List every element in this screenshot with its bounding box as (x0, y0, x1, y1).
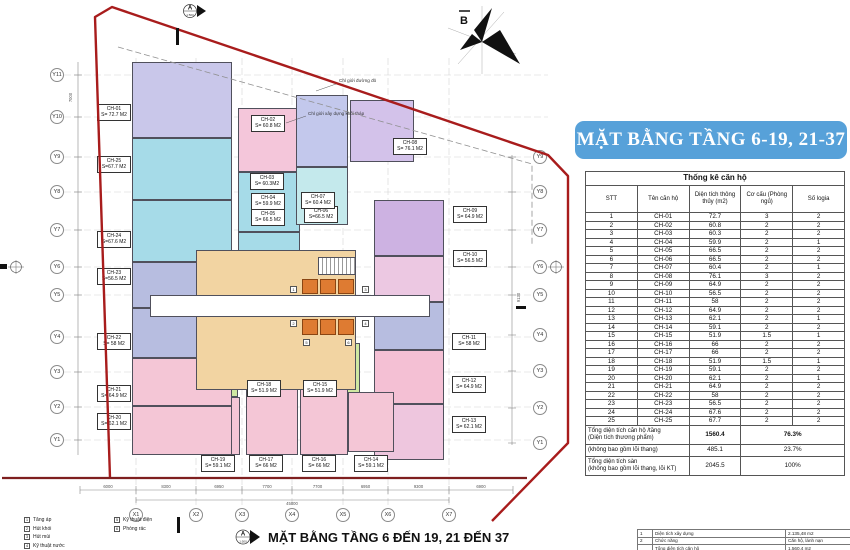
stats-cell: CH-11 (637, 298, 689, 307)
info-cell: Căn hộ, lánh nạn (786, 537, 850, 545)
grid-axis-x7: X7 (442, 508, 456, 522)
stats-cell: 1 (793, 374, 845, 383)
stats-cell: 2 (741, 383, 793, 392)
stats-cell: 2 (741, 221, 793, 230)
stats-cell: CH-18 (637, 357, 689, 366)
grid-axis-y6-left: Y6 (50, 260, 64, 274)
legend-number: 4 (24, 543, 30, 549)
stats-cell: 2 (741, 315, 793, 324)
stats-row: 24CH-2467.622 (586, 408, 845, 417)
stats-cell: 2 (793, 272, 845, 281)
apartment-block-ch-09 (374, 200, 444, 256)
apartment-block-ch-01 (132, 62, 232, 138)
stats-cell: 2 (741, 306, 793, 315)
stats-cell: 60.8 (689, 221, 741, 230)
stats-cell: 6 (586, 255, 638, 264)
stats-cell: 19 (586, 366, 638, 375)
stats-column-header: Diện tích thông thủy (m2) (689, 186, 741, 213)
elevator-box (338, 279, 354, 294)
stats-cell: 2 (793, 289, 845, 298)
stats-cell: 7 (586, 264, 638, 273)
dim-bottom-3: 7700 (262, 484, 271, 489)
info-row: 1Diện tích xây dựng2.135,48 m2 (638, 530, 850, 538)
stats-row: 4CH-0459.921 (586, 238, 845, 247)
stats-cell: 2 (741, 366, 793, 375)
stats-row: 13CH-1362.121 (586, 315, 845, 324)
apartment-block-ch-07 (296, 95, 348, 167)
stats-cell: 12 (586, 306, 638, 315)
stats-cell: 1 (586, 213, 638, 222)
stats-row: 20CH-2062.121 (586, 374, 845, 383)
legend-item-6: 6Phòng rác (114, 526, 146, 532)
stats-cell: 1 (793, 357, 845, 366)
stats-cell: CH-03 (637, 230, 689, 239)
stats-table-title: Thống kê căn hộ (586, 172, 845, 186)
stats-row: 15CH-1551.91.51 (586, 332, 845, 341)
project-info-table: 1Diện tích xây dựng2.135,48 m22Chức năng… (637, 529, 850, 550)
info-row: Tổng diện tích căn hộ1.560,4 m2 (638, 545, 850, 550)
stats-cell: 2 (793, 400, 845, 409)
info-cell: Chức năng (653, 537, 786, 545)
stats-footer-row: Tổng diện tích sàn (không bao gồm lõi th… (586, 456, 845, 475)
grid-axis-x2: X2 (189, 508, 203, 522)
service-box-4: 4 (362, 320, 369, 327)
legend-label: Hút khói (33, 526, 51, 532)
stats-column-header: STT (586, 186, 638, 213)
grid-axis-x5: X5 (336, 508, 350, 522)
legend-item-5: 5Kỹ thuật điện (114, 517, 152, 523)
legend-number: 6 (114, 526, 120, 532)
stats-cell: 2 (793, 383, 845, 392)
stats-footer-pct: 100% (741, 456, 845, 475)
stats-cell: 2 (793, 221, 845, 230)
stats-cell: 58 (689, 391, 741, 400)
page-title: MẶT BẰNG TẦNG 6-19, 21-37 (575, 121, 847, 159)
dim-bottom-7: 6900 (476, 484, 485, 489)
stats-cell: 10 (586, 289, 638, 298)
stats-cell: CH-08 (637, 272, 689, 281)
info-cell: 1 (638, 530, 653, 538)
dim-bottom-1: 8300 (161, 484, 170, 489)
stats-cell: 17 (586, 349, 638, 358)
stats-cell: 2 (741, 417, 793, 426)
stats-column-header: Cơ cấu (Phòng ngủ) (741, 186, 793, 213)
stats-column-header: Số logia (793, 186, 845, 213)
stats-cell: 11 (586, 298, 638, 307)
stats-row: 7CH-0760.421 (586, 264, 845, 273)
service-box-1: 1 (290, 286, 297, 293)
stats-cell: 2 (741, 400, 793, 409)
stats-cell: 67.6 (689, 408, 741, 417)
grid-axis-y9-left: Y9 (50, 150, 64, 164)
stats-cell: CH-04 (637, 238, 689, 247)
stats-footer-label: Tổng diện tích căn hộ /tầng (Diện tích t… (586, 425, 690, 444)
stats-row: 22CH-225822 (586, 391, 845, 400)
stats-cell: 60.3 (689, 230, 741, 239)
stats-footer-label: Tổng diện tích sàn (không bao gồm lõi th… (586, 456, 690, 475)
stats-row: 23CH-2356.522 (586, 400, 845, 409)
stats-cell: CH-06 (637, 255, 689, 264)
stats-cell: 59.9 (689, 238, 741, 247)
grid-axis-x4: X4 (285, 508, 299, 522)
stats-cell: 59.1 (689, 366, 741, 375)
stats-cell: 51.9 (689, 357, 741, 366)
apartment-block-ch-25 (132, 138, 232, 200)
info-cell: 2.135,48 m2 (786, 530, 850, 538)
stats-footer-value: 485.1 (689, 444, 741, 456)
info-cell (638, 545, 653, 550)
service-box-2: 2 (290, 320, 297, 327)
stairs (318, 257, 356, 275)
stats-cell: 2 (741, 238, 793, 247)
stats-cell: CH-07 (637, 264, 689, 273)
stats-row: 19CH-1959.122 (586, 366, 845, 375)
legend-label: Kỹ thuật nước (33, 543, 65, 549)
grid-axis-y1-left: Y1 (50, 433, 64, 447)
stats-cell: CH-09 (637, 281, 689, 290)
apartment-label-ch-21: CH-21S= 64.9 M2 (97, 385, 131, 402)
apartment-label-ch-20: CH-20S= 62.1 M2 (97, 413, 131, 430)
stats-cell: CH-01 (637, 213, 689, 222)
apartment-label-ch-18: CH-18S= 51.9 M2 (247, 380, 281, 397)
stats-cell: 1.5 (741, 332, 793, 341)
stats-cell: CH-20 (637, 374, 689, 383)
apartment-label-ch-17: CH-17S= 66 M2 (249, 455, 283, 472)
stats-footer-row: Tổng diện tích căn hộ /tầng (Diện tích t… (586, 425, 845, 444)
stats-cell: 24 (586, 408, 638, 417)
stats-cell: 58 (689, 298, 741, 307)
stats-cell: 2 (741, 298, 793, 307)
stats-cell: 2 (793, 230, 845, 239)
grid-axis-y10-left: Y10 (50, 110, 64, 124)
dim-bottom-total: 45000 (286, 501, 298, 506)
stats-cell: 2 (793, 281, 845, 290)
grid-axis-y2-left: Y2 (50, 400, 64, 414)
grid-axis-y4-right: Y4 (533, 328, 547, 342)
stats-cell: CH-16 (637, 340, 689, 349)
apartment-label-ch-12: CH-12S= 64.9 M2 (452, 376, 486, 393)
info-cell: Tổng diện tích căn hộ (653, 545, 786, 550)
stats-row: 16CH-166622 (586, 340, 845, 349)
stats-row: 17CH-176622 (586, 349, 845, 358)
grid-axis-y9-right: Y9 (533, 150, 547, 164)
stats-cell: 2 (741, 408, 793, 417)
stats-cell: 16 (586, 340, 638, 349)
grid-axis-y5-left: Y5 (50, 288, 64, 302)
stats-cell: 56.5 (689, 289, 741, 298)
stats-row: 21CH-2164.922 (586, 383, 845, 392)
stats-row: 12CH-1264.922 (586, 306, 845, 315)
grid-axis-y7-right: Y7 (533, 223, 547, 237)
stats-footer-pct: 23.7% (741, 444, 845, 456)
stats-row: 18CH-1851.91.51 (586, 357, 845, 366)
stats-cell: CH-05 (637, 247, 689, 256)
stats-cell: 2 (586, 221, 638, 230)
stats-cell: 2 (741, 264, 793, 273)
legend-label: Hút mùi (33, 534, 50, 540)
stats-cell: CH-13 (637, 315, 689, 324)
stats-cell: 2 (793, 417, 845, 426)
stats-cell: 51.9 (689, 332, 741, 341)
elevator-box (320, 279, 336, 294)
stats-cell: 2 (741, 289, 793, 298)
stats-cell: CH-15 (637, 332, 689, 341)
stats-cell: 2 (741, 340, 793, 349)
grid-axis-y8-left: Y8 (50, 185, 64, 199)
dim-left-top: 7000 (68, 93, 73, 102)
legend-number: 3 (24, 534, 30, 540)
apartment-label-ch-24: CH-24S=67.6 M2 (97, 231, 131, 248)
grid-axis-y5-right: Y5 (533, 288, 547, 302)
north-arrow-icon: B (438, 0, 528, 75)
apartment-block-ch-16 (300, 388, 348, 455)
floor-plan-sheet: CH-01S= 72.7 M2CH-02S= 60.8 M2CH-03S= 60… (0, 0, 850, 550)
drawing-caption: MẶT BẰNG TẦNG 6 ĐẾN 19, 21 ĐẾN 37 (268, 530, 509, 545)
info-row: 2Chức năngCăn hộ, lánh nạn (638, 537, 850, 545)
dim-bottom-2: 6950 (214, 484, 223, 489)
stats-cell: 15 (586, 332, 638, 341)
apartment-label-ch-23: CH-23S=56.5 M2 (97, 268, 131, 285)
elevator-box (338, 319, 354, 335)
stats-row: 14CH-1459.122 (586, 323, 845, 332)
elevator-box (302, 319, 318, 335)
stats-cell: CH-10 (637, 289, 689, 298)
stats-cell: 2 (741, 247, 793, 256)
construction-line-label: Chỉ giới xây dựng khối tháp (308, 111, 364, 116)
stats-cell: 3 (741, 213, 793, 222)
dim-bottom-6: 9300 (414, 484, 423, 489)
apartment-label-ch-04: CH-04S= 59.9 M2 (251, 193, 285, 210)
dim-right-side: 9130 (516, 293, 521, 302)
grid-axis-y3-left: Y3 (50, 365, 64, 379)
dim-bottom-5: 6950 (361, 484, 370, 489)
stats-cell: 72.7 (689, 213, 741, 222)
grid-axis-y7-left: Y7 (50, 223, 64, 237)
stats-row: 10CH-1056.522 (586, 289, 845, 298)
stats-cell: 2 (741, 281, 793, 290)
stats-cell: 66.5 (689, 255, 741, 264)
stats-cell: 2 (741, 230, 793, 239)
stats-cell: 23 (586, 400, 638, 409)
grid-axis-y11-left: Y11 (50, 68, 64, 82)
stats-cell: 18 (586, 357, 638, 366)
stats-footer-row: (không bao gồm lõi thang)485.123.7% (586, 444, 845, 456)
grid-axis-y8-right: Y8 (533, 185, 547, 199)
stats-cell: 56.5 (689, 400, 741, 409)
stats-cell: 76.1 (689, 272, 741, 281)
stats-cell: 2 (793, 391, 845, 400)
stats-row: 6CH-0666.522 (586, 255, 845, 264)
stats-cell: 2 (793, 306, 845, 315)
apartment-label-ch-14: CH-14S= 59.1 M2 (354, 455, 388, 472)
stats-row: 5CH-0566.522 (586, 247, 845, 256)
apartment-label-ch-13: CH-13S= 62.1 M2 (452, 416, 486, 433)
stats-row: 1CH-0172.732 (586, 213, 845, 222)
stats-cell: CH-14 (637, 323, 689, 332)
red-line-label: Chỉ giới đường đỏ (339, 78, 376, 83)
stats-cell: 3 (586, 230, 638, 239)
grid-axis-y1-right: Y1 (533, 436, 547, 450)
stats-cell: 2 (793, 366, 845, 375)
stats-cell: 2 (741, 255, 793, 264)
apartment-label-ch-03: CH-03S= 60.3M2 (250, 173, 284, 190)
stats-cell: CH-12 (637, 306, 689, 315)
stats-cell: 64.9 (689, 383, 741, 392)
stats-cell: 5 (586, 247, 638, 256)
stats-cell: 21 (586, 383, 638, 392)
apartment-label-ch-11: CH-11S= 58 M2 (452, 333, 486, 350)
stats-cell: CH-19 (637, 366, 689, 375)
stats-cell: 13 (586, 315, 638, 324)
apartment-label-ch-08: CH-08S= 76.1 M2 (393, 138, 427, 155)
corridor (150, 295, 430, 317)
stats-cell: 64.9 (689, 306, 741, 315)
elevator-box (302, 279, 318, 294)
stats-footer-label: (không bao gồm lõi thang) (586, 444, 690, 456)
legend-item-3: 3Hút mùi (24, 534, 50, 540)
stats-cell: CH-24 (637, 408, 689, 417)
stats-row: 25CH-2567.722 (586, 417, 845, 426)
apartment-label-ch-05: CH-05S= 66.5 M2 (251, 209, 285, 226)
stats-cell: 1 (793, 264, 845, 273)
stats-cell: 14 (586, 323, 638, 332)
stats-footer-pct: 76.3% (741, 425, 845, 444)
info-cell: 2 (638, 537, 653, 545)
stats-row: 11CH-115822 (586, 298, 845, 307)
stats-cell: CH-22 (637, 391, 689, 400)
legend-number: 1 (24, 517, 30, 523)
stats-cell: CH-02 (637, 221, 689, 230)
dim-bottom-0: 6000 (103, 484, 112, 489)
service-box-5: 5 (303, 339, 310, 346)
service-box-6: 6 (345, 339, 352, 346)
apartment-label-ch-19: CH-19S= 59.1 M2 (201, 455, 235, 472)
dim-bottom-4: 7700 (313, 484, 322, 489)
apartment-label-ch-22: CH-22S= 58 M2 (97, 333, 131, 350)
north-letter: B (460, 15, 468, 27)
elevator-box (320, 319, 336, 335)
apartment-block-ch-14 (348, 392, 394, 452)
stats-cell: 2 (741, 323, 793, 332)
stats-row: 9CH-0964.922 (586, 281, 845, 290)
stats-cell: 1 (793, 332, 845, 341)
legend-label: Phòng rác (123, 526, 146, 532)
info-cell: Diện tích xây dựng (653, 530, 786, 538)
stats-cell: 22 (586, 391, 638, 400)
legend-number: 5 (114, 517, 120, 523)
stats-cell: 64.9 (689, 281, 741, 290)
stats-footer-value: 1560.4 (689, 425, 741, 444)
legend-number: 2 (24, 526, 30, 532)
stats-cell: CH-21 (637, 383, 689, 392)
apartment-label-ch-15: CH-15S= 51.9 M2 (303, 380, 337, 397)
stats-row: 3CH-0360.322 (586, 230, 845, 239)
stats-cell: 2 (793, 255, 845, 264)
info-cell: 1.560,4 m2 (786, 545, 850, 550)
stats-cell: 62.1 (689, 374, 741, 383)
stats-cell: 66 (689, 340, 741, 349)
apartment-label-ch-10: CH-10S= 56.5 M2 (453, 250, 487, 267)
stats-cell: 60.4 (689, 264, 741, 273)
stats-cell: 3 (741, 272, 793, 281)
stats-cell: 25 (586, 417, 638, 426)
apartment-statistics-table: Thống kê căn hộSTTTên căn hộDiện tích th… (585, 171, 845, 476)
stats-cell: CH-17 (637, 349, 689, 358)
service-box-3: 3 (362, 286, 369, 293)
stats-cell: 59.1 (689, 323, 741, 332)
apartment-block-ch-17 (246, 388, 298, 455)
grid-axis-y6-right: Y6 (533, 260, 547, 274)
stats-cell: 66 (689, 349, 741, 358)
stats-cell: 2 (793, 323, 845, 332)
apartment-label-ch-02: CH-02S= 60.8 M2 (251, 115, 285, 132)
stats-footer-value: 2045.5 (689, 456, 741, 475)
stats-cell: 8 (586, 272, 638, 281)
legend-item-1: 1Tăng áp (24, 517, 51, 523)
apartment-label-ch-09: CH-09S= 64.9 M2 (453, 206, 487, 223)
stats-cell: 62.1 (689, 315, 741, 324)
stats-cell: 2 (741, 349, 793, 358)
stats-cell: 2 (793, 213, 845, 222)
stats-cell: 67.7 (689, 417, 741, 426)
grid-axis-y2-right: Y2 (533, 401, 547, 415)
stats-cell: 2 (741, 374, 793, 383)
stats-cell: 66.5 (689, 247, 741, 256)
apartment-label-ch-16: CH-16S= 66 M2 (302, 455, 336, 472)
stats-column-header: Tên căn hộ (637, 186, 689, 213)
apartment-label-ch-07: CH-07S= 60.4 M2 (301, 192, 335, 209)
legend-label: Kỹ thuật điện (123, 517, 152, 523)
stats-cell: 1 (793, 315, 845, 324)
grid-axis-x3: X3 (235, 508, 249, 522)
legend-item-2: 2Hút khói (24, 526, 51, 532)
stats-cell: CH-23 (637, 400, 689, 409)
stats-cell: 2 (793, 340, 845, 349)
grid-axis-x6: X6 (381, 508, 395, 522)
apartment-block-ch-20 (132, 406, 232, 455)
stats-cell: 4 (586, 238, 638, 247)
stats-row: 8CH-0876.132 (586, 272, 845, 281)
stats-cell: 2 (793, 408, 845, 417)
stats-row: 2CH-0260.822 (586, 221, 845, 230)
stats-cell: 2 (793, 349, 845, 358)
apartment-label-ch-25: CH-25S=67.7 M2 (97, 156, 131, 173)
stats-cell: 2 (793, 298, 845, 307)
apartment-label-ch-01: CH-01S= 72.7 M2 (97, 104, 131, 121)
legend-label: Tăng áp (33, 517, 51, 523)
stats-cell: CH-25 (637, 417, 689, 426)
grid-axis-y4-left: Y4 (50, 330, 64, 344)
stats-cell: 20 (586, 374, 638, 383)
stats-cell: 1 (793, 238, 845, 247)
stats-cell: 2 (793, 247, 845, 256)
stats-cell: 1.5 (741, 357, 793, 366)
stats-cell: 2 (741, 391, 793, 400)
grid-axis-y3-right: Y3 (533, 364, 547, 378)
legend-item-4: 4Kỹ thuật nước (24, 543, 65, 549)
stats-cell: 9 (586, 281, 638, 290)
